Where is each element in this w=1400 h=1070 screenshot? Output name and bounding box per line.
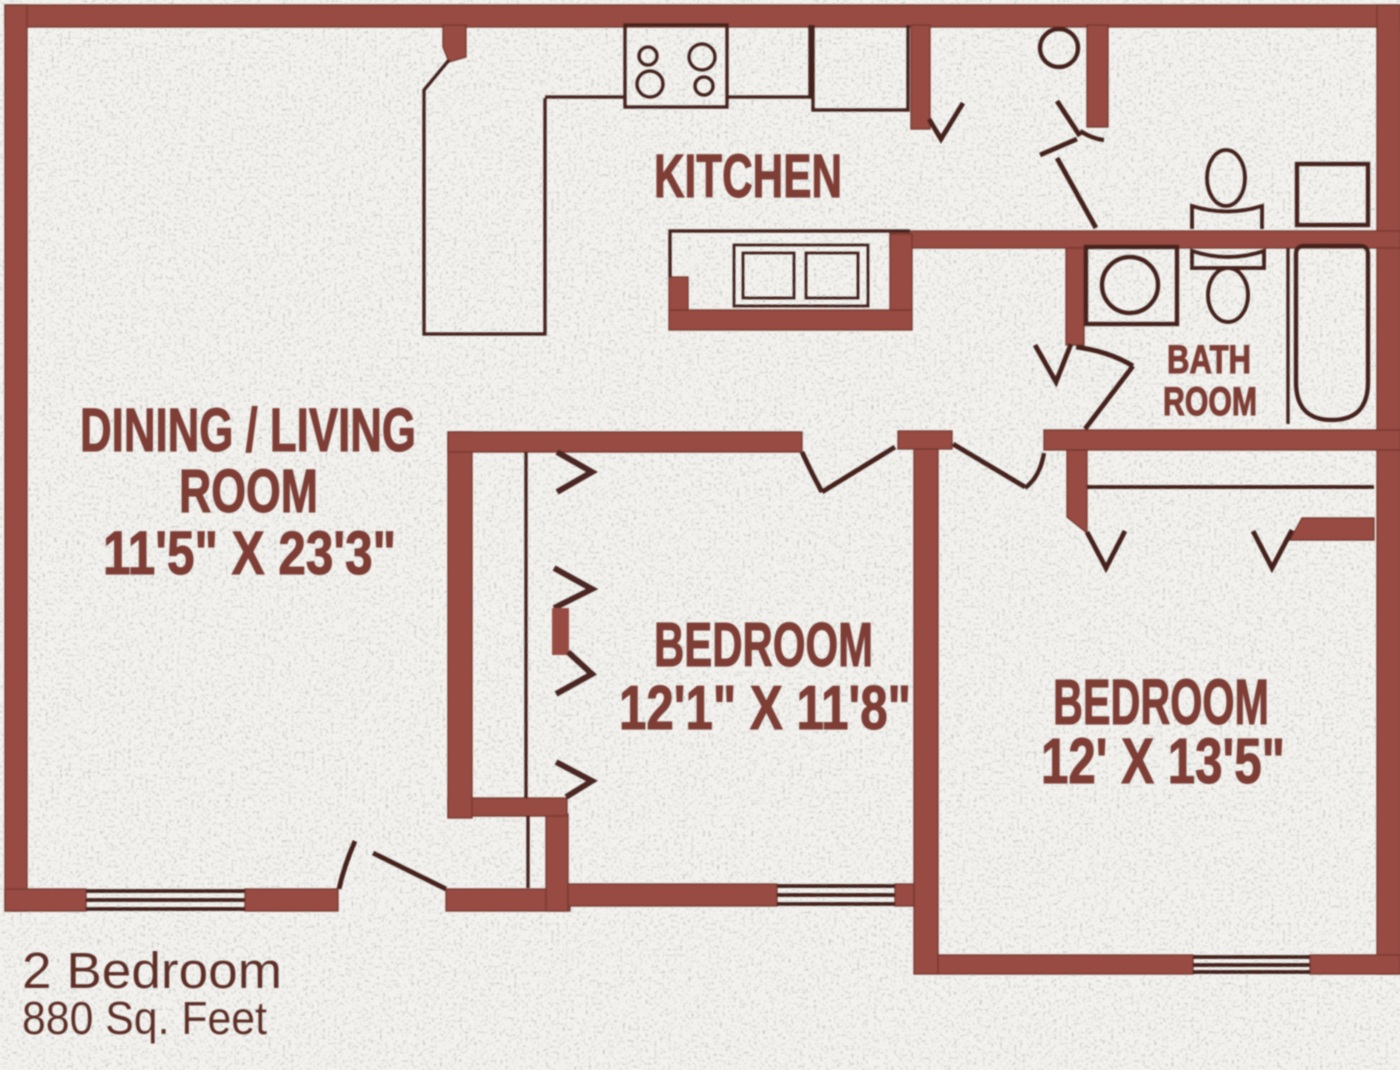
svg-text:11'5" X 23'3": 11'5" X 23'3" bbox=[103, 519, 396, 587]
svg-text:12'1" X 11'8": 12'1" X 11'8" bbox=[619, 674, 911, 743]
svg-text:BATH: BATH bbox=[1167, 338, 1251, 382]
svg-text:2 Bedroom: 2 Bedroom bbox=[22, 942, 282, 999]
svg-text:880 Sq. Feet: 880 Sq. Feet bbox=[22, 992, 267, 1044]
svg-text:DINING / LIVING: DINING / LIVING bbox=[80, 396, 416, 464]
svg-text:12' X 13'5": 12' X 13'5" bbox=[1041, 725, 1285, 797]
svg-text:KITCHEN: KITCHEN bbox=[654, 142, 842, 210]
svg-text:ROOM: ROOM bbox=[179, 457, 318, 525]
svg-text:BEDROOM: BEDROOM bbox=[654, 611, 873, 680]
svg-text:ROOM: ROOM bbox=[1163, 380, 1257, 424]
